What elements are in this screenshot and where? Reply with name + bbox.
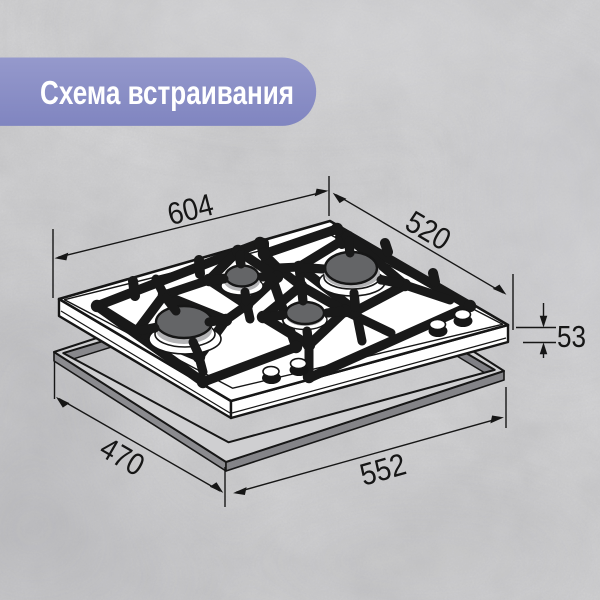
svg-text:53: 53 [557, 319, 586, 354]
svg-text:Схема встраивания: Схема встраивания [40, 75, 294, 112]
